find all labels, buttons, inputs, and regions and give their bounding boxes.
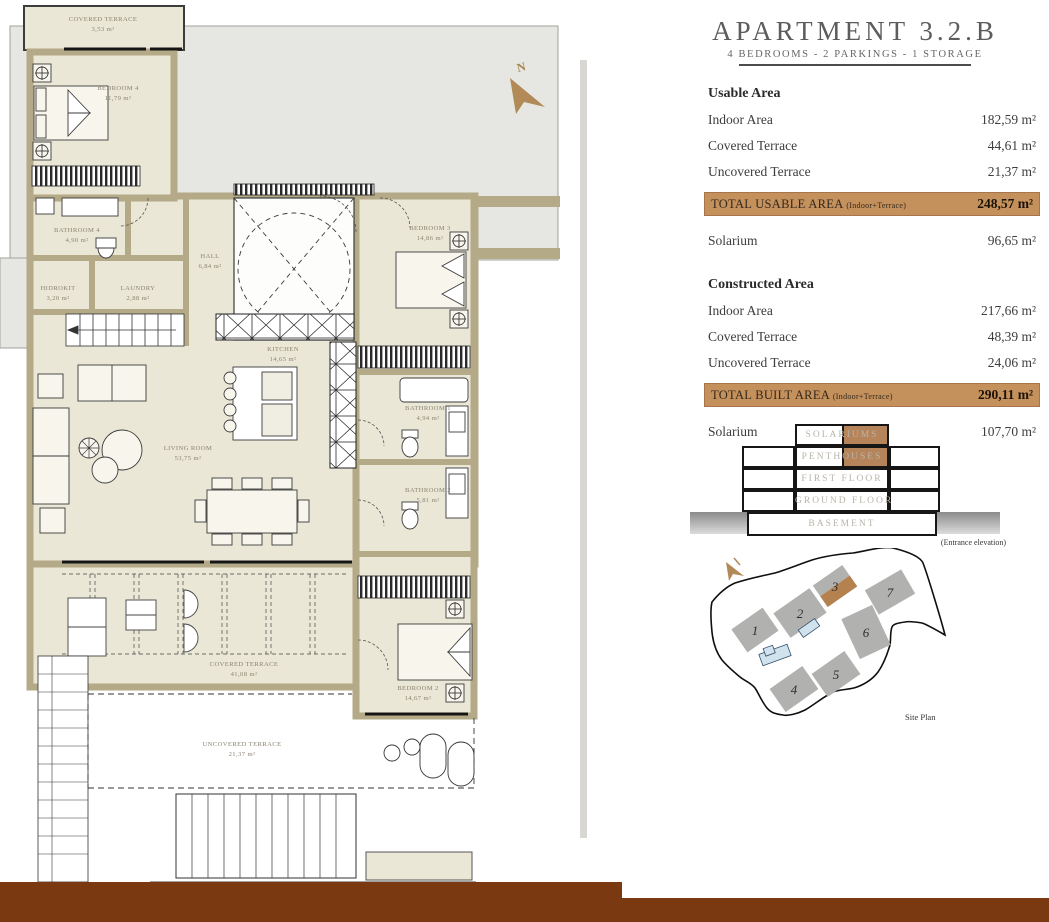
svg-text:1: 1 bbox=[752, 623, 759, 638]
svg-text:6: 6 bbox=[863, 625, 870, 640]
room-label-bedroom-2: BEDROOM 214,67 m² bbox=[370, 684, 466, 703]
usable-area-heading: Usable Area bbox=[708, 86, 1036, 102]
page-title: APARTMENT 3.2.B bbox=[660, 16, 1049, 47]
svg-text:3: 3 bbox=[831, 579, 839, 594]
title-rule bbox=[739, 64, 971, 66]
room-label-kitchen: KITCHEN14,65 m² bbox=[235, 345, 331, 364]
room-label-covered-terrace: COVERED TERRACE41,08 m² bbox=[196, 660, 292, 679]
floor-label-solariums: SOLARIUMS bbox=[795, 424, 889, 446]
kitchen-counter-column bbox=[330, 342, 356, 468]
ground-strip-left bbox=[690, 512, 747, 534]
table-row: Uncovered Terrace21,37 m² bbox=[708, 164, 1036, 180]
vertical-divider bbox=[580, 60, 587, 838]
floor-label-first-floor: FIRST FLOOR bbox=[795, 468, 889, 490]
apartment-plan-sheet: N COVERED TERRACE3,53 m² BEDROOM 411,79 … bbox=[0, 0, 1049, 922]
room-label-hall: HALL6,84 m² bbox=[162, 252, 258, 271]
room-label-laundry: LAUNDRY2,88 m² bbox=[90, 284, 186, 303]
info-panel: APARTMENT 3.2.B 4 BEDROOMS - 2 PARKINGS … bbox=[660, 16, 1049, 440]
floor-plan-drawing: N bbox=[0, 0, 620, 885]
bottom-bar-right bbox=[622, 898, 1049, 922]
bottom-bar-left bbox=[0, 882, 622, 922]
ground-strip-right bbox=[937, 512, 1000, 534]
room-label-bedroom-3: BEDROOM 314,86 m² bbox=[382, 224, 478, 243]
site-plan: 1 2 3 4 5 6 7 bbox=[690, 548, 1020, 733]
constructed-area-heading: Constructed Area bbox=[708, 277, 1036, 293]
svg-text:4: 4 bbox=[791, 682, 798, 697]
svg-text:7: 7 bbox=[887, 585, 894, 600]
table-row: Uncovered Terrace24,06 m² bbox=[708, 355, 1036, 371]
site-north-arrow bbox=[726, 558, 744, 581]
svg-text:5: 5 bbox=[833, 667, 840, 682]
room-label-bathroom-1: BATHROOM 14,94 m² bbox=[380, 404, 476, 423]
room-label-covered-terrace-top: COVERED TERRACE3,53 m² bbox=[55, 15, 151, 34]
total-built-band: TOTAL BUILT AREA (Indoor+Terrace) 290,11… bbox=[704, 383, 1040, 407]
kitchen-counter bbox=[216, 314, 354, 340]
table-row: Indoor Area217,66 m² bbox=[708, 303, 1036, 319]
building-elevation: SOLARIUMS PENTHOUSES FIRST FLOOR GROUND … bbox=[690, 420, 1020, 552]
room-label-bedroom-4: BEDROOM 411,79 m² bbox=[70, 84, 166, 103]
page-subtitle: 4 BEDROOMS - 2 PARKINGS - 1 STORAGE bbox=[660, 49, 1049, 60]
svg-text:2: 2 bbox=[797, 606, 804, 621]
room-label-living-room: LIVING ROOM53,75 m² bbox=[140, 444, 236, 463]
table-row: Covered Terrace44,61 m² bbox=[708, 138, 1036, 154]
room-label-uncovered-terrace: UNCOVERED TERRACE21,37 m² bbox=[194, 740, 290, 759]
total-usable-band: TOTAL USABLE AREA (Indoor+Terrace) 248,5… bbox=[704, 192, 1040, 216]
site-plan-caption: Site Plan bbox=[905, 712, 935, 722]
floor-label-ground-floor: GROUND FLOOR bbox=[795, 490, 889, 512]
room-label-bathroom-4: BATHROOM 44,90 m² bbox=[29, 226, 125, 245]
table-row: Indoor Area182,59 m² bbox=[708, 112, 1036, 128]
solarium-row: Solarium96,65 m² bbox=[708, 233, 1036, 249]
stairs bbox=[66, 314, 184, 346]
floor-label-penthouses: PENTHOUSES bbox=[795, 446, 889, 468]
floor-label-basement: BASEMENT bbox=[747, 512, 937, 536]
elevation-caption: (Entrance elevation) bbox=[941, 538, 1006, 547]
room-label-bathroom-2: BATHROOM 25,81 m² bbox=[380, 486, 476, 505]
table-row: Covered Terrace48,39 m² bbox=[708, 329, 1036, 345]
